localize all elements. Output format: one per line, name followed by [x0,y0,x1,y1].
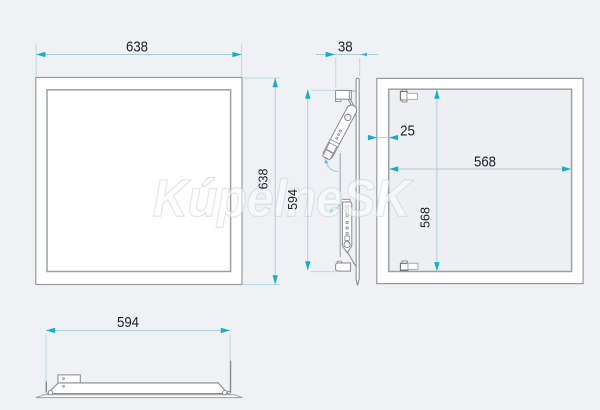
svg-text:25: 25 [400,122,415,139]
svg-text:KúpelneSK: KúpelneSK [153,170,413,228]
svg-text:594: 594 [117,314,139,331]
svg-text:638: 638 [257,169,271,190]
svg-text:638: 638 [126,38,148,55]
svg-text:38: 38 [338,38,353,55]
svg-text:568: 568 [474,153,496,170]
svg-text:594: 594 [286,189,300,210]
svg-text:568: 568 [419,207,433,228]
